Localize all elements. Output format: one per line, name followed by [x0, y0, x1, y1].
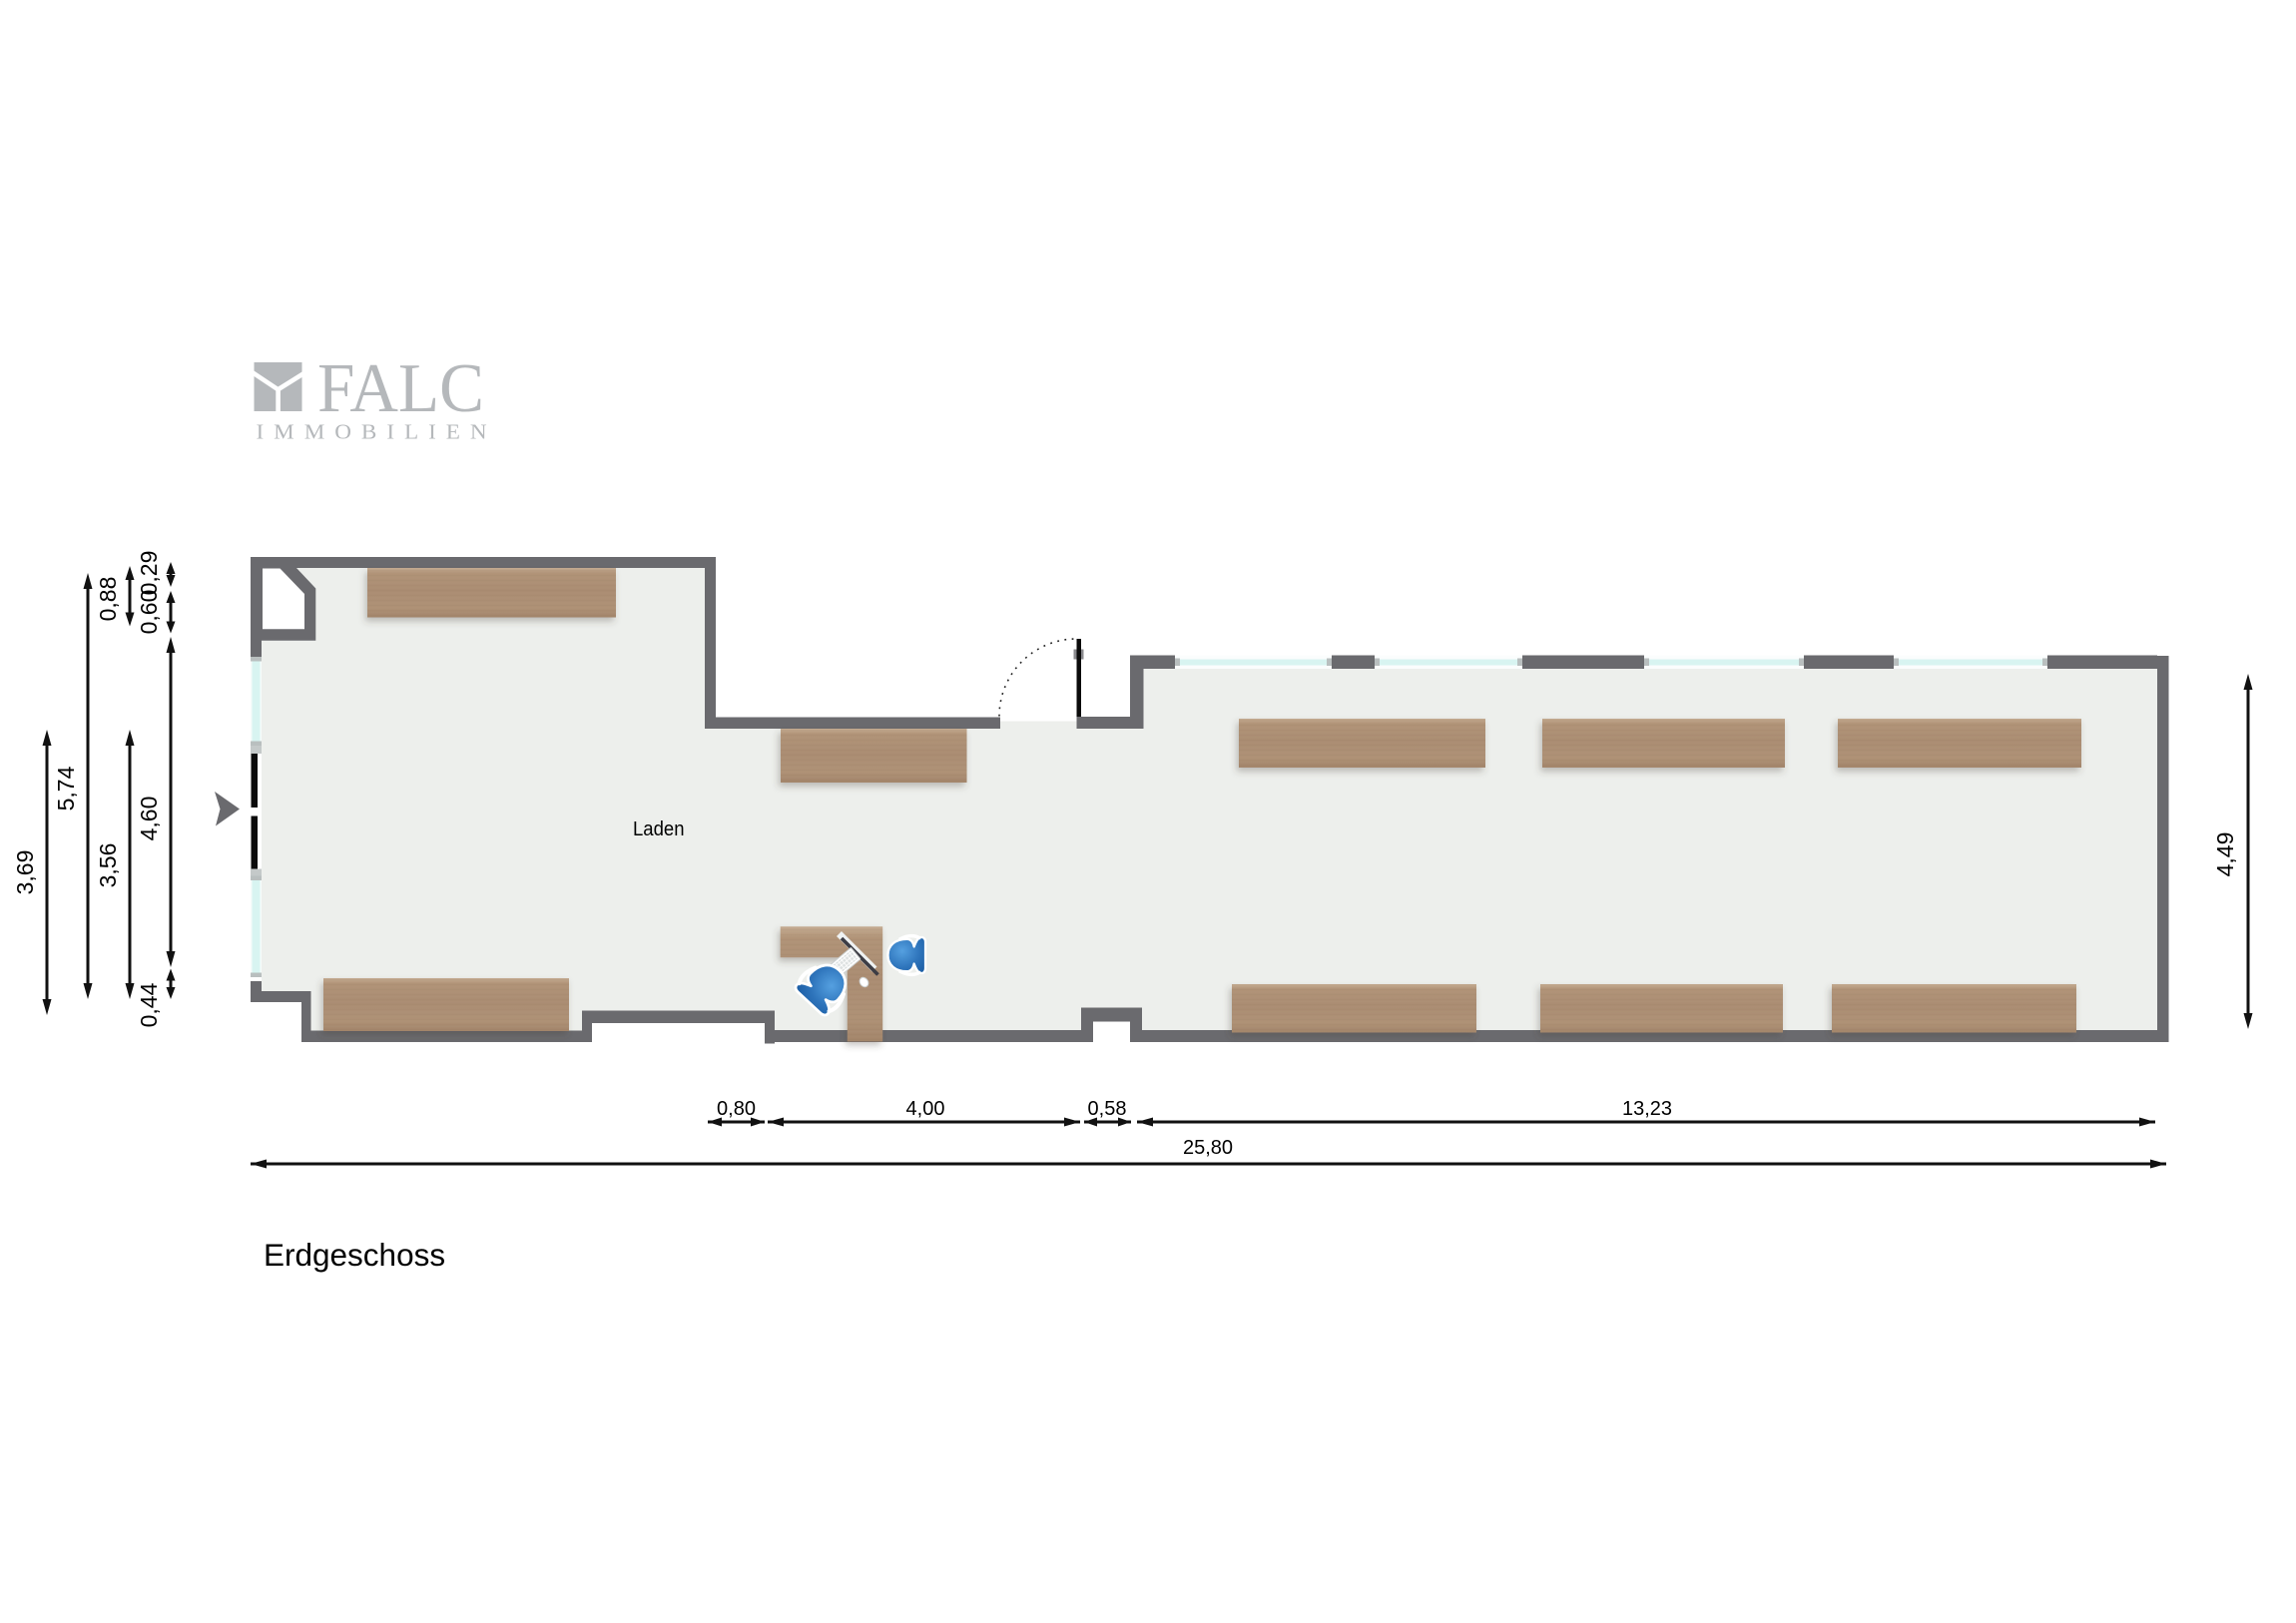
svg-text:4,00: 4,00	[906, 1098, 945, 1120]
svg-text:3,56: 3,56	[95, 843, 121, 888]
svg-text:3,69: 3,69	[12, 850, 38, 895]
svg-text:4,60: 4,60	[136, 797, 162, 841]
svg-text:0,29: 0,29	[136, 551, 162, 596]
svg-text:0,80: 0,80	[717, 1098, 756, 1120]
svg-text:Laden: Laden	[633, 818, 685, 840]
svg-text:25,80: 25,80	[1183, 1137, 1233, 1159]
svg-text:IMMOBILIEN: IMMOBILIEN	[257, 420, 497, 444]
svg-text:13,23: 13,23	[1622, 1098, 1672, 1120]
svg-text:4,49: 4,49	[2212, 832, 2238, 877]
svg-text:FALC: FALC	[317, 350, 484, 427]
svg-text:0,60: 0,60	[136, 590, 162, 635]
svg-text:0,44: 0,44	[136, 982, 162, 1027]
svg-text:5,74: 5,74	[53, 766, 79, 811]
svg-text:Erdgeschoss: Erdgeschoss	[264, 1237, 445, 1273]
svg-text:0,88: 0,88	[95, 577, 121, 622]
svg-text:0,58: 0,58	[1088, 1098, 1127, 1120]
